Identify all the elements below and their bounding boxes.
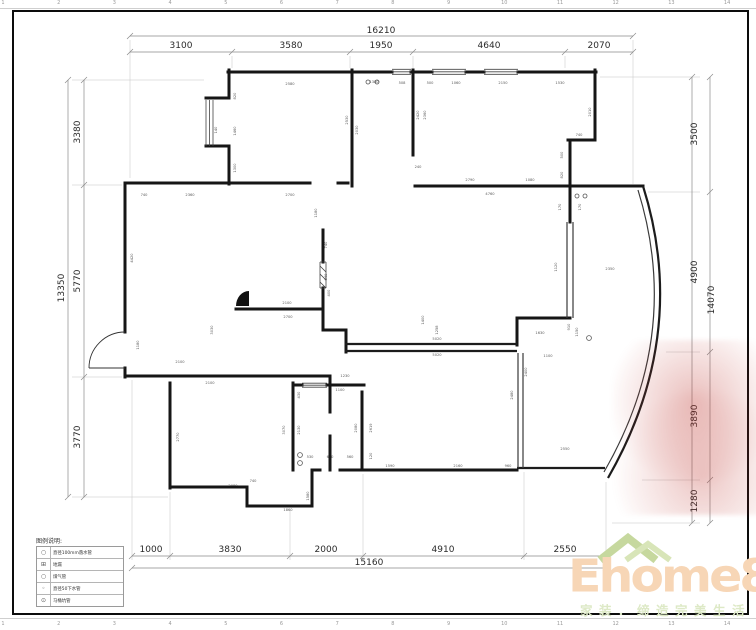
legend-row: ○直径100mm落水管: [37, 547, 123, 559]
small-dim: 1060: [451, 81, 461, 85]
small-dim: 2030: [355, 125, 359, 135]
small-dim: 530: [307, 455, 315, 459]
legend-label: 地漏: [51, 562, 123, 568]
small-dim: 5020: [432, 337, 442, 341]
small-dim: 1100: [335, 388, 345, 392]
ruler-number: 12: [613, 621, 619, 627]
legend-label: 马桶坑管: [51, 598, 123, 604]
small-dim: 1630: [535, 331, 545, 335]
small-dim: 500: [560, 151, 564, 159]
small-dim: 4760: [485, 192, 495, 196]
small-dim: 3070: [282, 425, 286, 435]
window-lines: [206, 69, 518, 387]
ruler-number: 13: [668, 0, 674, 6]
small-dim: 1530: [555, 81, 565, 85]
ruler-number: 14: [724, 0, 730, 6]
small-dim: 5020: [432, 353, 442, 357]
dim-top-overall: 16210: [367, 26, 396, 36]
ruler-number: 7: [336, 0, 339, 6]
floor-drain-icon: ⊞: [37, 559, 51, 570]
ruler-number: 11: [557, 0, 563, 6]
small-dim: 2580: [285, 82, 295, 86]
ruler-number: 11: [557, 621, 563, 627]
small-dim: 2360: [185, 193, 195, 197]
floorplan-sheet: 16210 3100 3580 1950 4640 2070 13350 338…: [0, 0, 756, 630]
ruler-number: 9: [447, 0, 450, 6]
small-dim: 560: [347, 455, 355, 459]
small-dim: 120: [369, 452, 373, 460]
dimension-labels: 16210 3100 3580 1950 4640 2070 13350 338…: [57, 26, 717, 568]
small-dim: 1150: [575, 327, 579, 337]
small-dim: 2360: [423, 110, 427, 120]
ruler-number: 3: [113, 621, 116, 627]
small-dim: 140: [214, 126, 218, 134]
small-dim: 2150: [498, 81, 508, 85]
small-dim: 1180: [314, 208, 318, 218]
balcony-inner-curve: [604, 190, 654, 472]
dim-right-4: 1280: [690, 489, 700, 512]
toilet-pipe-icon: ⊙: [37, 595, 51, 606]
pipe-symbols: [298, 80, 592, 465]
ruler-number: 8: [391, 621, 394, 627]
small-dim: 500: [427, 81, 435, 85]
ruler-number: 2: [57, 621, 60, 627]
small-dim: 1230: [340, 374, 350, 378]
dim-bottom-4: 4910: [432, 545, 455, 555]
walls-thick: [125, 70, 643, 506]
small-dim: 1580: [306, 491, 310, 501]
ruler-number: 1: [1, 0, 4, 6]
legend-title: 图例说明:: [36, 536, 124, 545]
small-dim: 740: [576, 133, 584, 137]
dim-top-3: 1950: [370, 41, 393, 51]
legend-row: ◦直径50下水管: [37, 583, 123, 595]
dim-bottom-overall: 15160: [355, 558, 384, 568]
small-dim: 1180: [136, 340, 140, 350]
dim-right-1: 3500: [690, 122, 700, 145]
small-dim: 2619: [369, 423, 373, 433]
dim-bottom-1: 1000: [140, 545, 163, 555]
extension-lines: [72, 40, 700, 560]
entry-door-swing: [89, 332, 125, 368]
ruler-number: 10: [501, 621, 507, 627]
small-dim: 1400: [421, 315, 425, 325]
small-dim: 3030: [210, 325, 214, 335]
small-dim: 2530: [345, 115, 349, 125]
small-dim: 2700: [283, 315, 293, 319]
gas-pipe-icon: ○: [37, 571, 51, 582]
interior-dimension-labels: 2580820146013001402530138050820305001060…: [130, 80, 615, 512]
ruler-number: 5: [224, 0, 227, 6]
small-dim: 820: [560, 171, 564, 179]
small-dim: 430: [297, 391, 301, 399]
small-dim: 240: [415, 165, 423, 169]
ruler-number: 4: [169, 621, 172, 627]
small-dim: 2010: [588, 107, 592, 117]
small-dim: 910: [567, 323, 571, 331]
small-dim: 740: [250, 479, 258, 483]
small-dim: 2420: [416, 110, 420, 120]
dim-left-3: 3770: [73, 425, 83, 448]
legend-row: ⊞地漏: [37, 559, 123, 571]
dim-right-overall: 14070: [707, 285, 717, 314]
dim-top-5: 2070: [588, 41, 611, 51]
dim-bottom-2: 3830: [219, 545, 242, 555]
dim-left-1: 3380: [73, 120, 83, 143]
downpipe-circle-icon: ○: [37, 547, 51, 558]
legend-label: 煤气管: [51, 574, 123, 580]
small-dim: 2790: [465, 178, 475, 182]
legend-row: ⊙马桶坑管: [37, 595, 123, 606]
flue-symbol: [236, 291, 249, 306]
ruler-number: 14: [724, 621, 730, 627]
dim-bottom-3: 2000: [315, 545, 338, 555]
brand-logo: Ehome8 家装．缔造完美生活: [566, 528, 752, 620]
ruler-number: 8: [391, 0, 394, 6]
small-dim: 508: [399, 81, 407, 85]
ruler-number: 1: [1, 621, 4, 627]
legend-row: ○煤气管: [37, 571, 123, 583]
ruler-number: 2: [57, 0, 60, 6]
small-dim: 2480: [510, 390, 514, 400]
small-dim: 170: [558, 203, 562, 211]
dimension-lines: [65, 33, 713, 571]
bay-window: [206, 100, 213, 146]
small-dim: 1258: [435, 325, 439, 335]
dim-left-2: 5770: [73, 269, 83, 292]
small-dim: 1460: [233, 126, 237, 136]
small-dim: 960: [505, 464, 513, 468]
small-dim: 740: [141, 193, 149, 197]
dim-right-3: 3890: [690, 404, 700, 427]
small-dim: 2080: [354, 423, 358, 433]
drain-pipe-icon: ◦: [37, 583, 51, 594]
ruler-number: 9: [447, 621, 450, 627]
dim-top-4: 4640: [478, 41, 501, 51]
small-dim: 1590: [385, 464, 395, 468]
small-dim: 740: [324, 241, 328, 249]
brand-tagline: 家装．缔造完美生活: [580, 600, 751, 619]
legend-panel: 图例说明: ○直径100mm落水管⊞地漏○煤气管◦直径50下水管⊙马桶坑管: [36, 536, 124, 607]
legend-label: 直径50下水管: [51, 586, 123, 592]
ruler-number: 12: [613, 0, 619, 6]
small-dim: 1860: [283, 508, 293, 512]
legend-table: ○直径100mm落水管⊞地漏○煤气管◦直径50下水管⊙马桶坑管: [36, 546, 124, 607]
ruler-number: 6: [280, 0, 283, 6]
ruler-number: 7: [336, 621, 339, 627]
small-dim: 1080: [525, 178, 535, 182]
small-dim: 2700: [285, 193, 295, 197]
small-dim: 820: [233, 92, 237, 100]
ruler-number: 6: [280, 621, 283, 627]
ruler-number: 4: [169, 0, 172, 6]
small-dim: 2350: [605, 267, 615, 271]
ruler-number: 10: [501, 0, 507, 6]
small-dim: 2100: [282, 301, 292, 305]
dim-left-overall: 13350: [57, 273, 67, 302]
brand-name: Ehome8: [568, 550, 756, 602]
small-dim: 2100: [205, 381, 215, 385]
dim-right-2: 4900: [690, 260, 700, 283]
small-dim: 2130: [297, 425, 301, 435]
dim-top-1: 3100: [170, 41, 193, 51]
small-dim: 2770: [176, 432, 180, 442]
small-dim: 4420: [130, 253, 134, 263]
small-dim: 170: [578, 203, 582, 211]
small-dim: 2400: [524, 367, 528, 377]
dim-top-2: 3580: [280, 41, 303, 51]
small-dim: 2100: [175, 360, 185, 364]
small-dim: 1100: [543, 354, 553, 358]
walls-medium: [345, 186, 660, 478]
small-dim: 1120: [554, 262, 558, 272]
small-dim: 400: [327, 289, 331, 297]
small-dim: 2160: [453, 464, 463, 468]
small-dim: 2550: [560, 447, 570, 451]
ruler-number: 13: [668, 621, 674, 627]
ruler-number: 5: [224, 621, 227, 627]
ruler-number: 3: [113, 0, 116, 6]
small-dim: 1300: [233, 163, 237, 173]
legend-label: 直径100mm落水管: [51, 550, 123, 556]
